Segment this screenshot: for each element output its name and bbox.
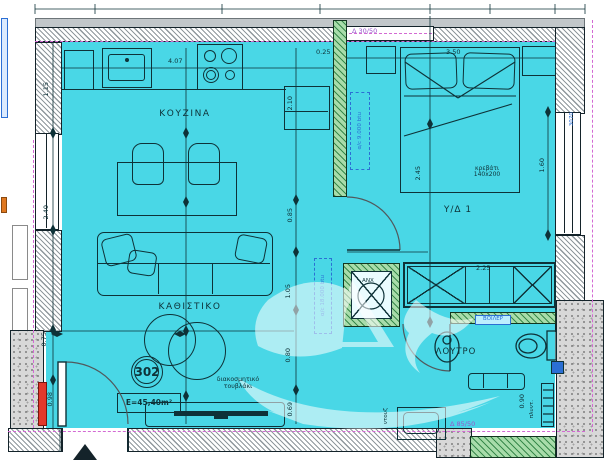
bed-pillow	[462, 52, 515, 90]
bathroom-label: ΛΟΥΤΡΟ	[424, 348, 488, 357]
burner-icon	[225, 70, 235, 80]
left-margin-orange-element	[1, 197, 7, 213]
counter-edge	[62, 89, 286, 90]
ac-bedroom-label: α/c 9.000 btu	[357, 112, 363, 150]
boundary-dashed-right	[592, 20, 593, 432]
dim-wardrobe: 2.25	[476, 265, 490, 272]
shower-mixer	[551, 361, 564, 374]
ac-unit-bedroom: α/c 9.000 btu	[350, 92, 370, 170]
shower-label: ντουζ	[384, 408, 390, 424]
shaft-label: ANX	[362, 279, 374, 285]
sofa-pillow	[126, 249, 157, 277]
kitchen-cabinet	[64, 50, 94, 90]
right-window	[555, 112, 581, 235]
boundary-dashed-left	[33, 140, 34, 428]
dim-069: 0.69	[287, 402, 294, 416]
beam-top-label: Δ 30/50	[352, 28, 377, 35]
room-fill-entry	[46, 330, 64, 428]
left-margin-blue-element	[1, 18, 8, 118]
tv-console	[145, 402, 285, 427]
left-wall-lower	[35, 230, 62, 332]
boiler-label-box: ΒΟΙΛΕΡ	[475, 315, 511, 325]
dim-240: 2.40	[43, 205, 50, 219]
partition-wall-center	[333, 20, 347, 197]
nightstand	[522, 46, 556, 76]
wardrobe-section-x	[407, 266, 465, 304]
dining-chair	[188, 143, 220, 185]
burner-ring-icon	[206, 70, 216, 80]
washer-label: πλυντ.	[530, 400, 536, 418]
window-code-label: 3070	[570, 112, 576, 126]
faucet-icon	[125, 58, 129, 62]
shower-tray	[397, 407, 446, 440]
dim-080: 0.80	[285, 348, 292, 362]
dim-towel-rail: 0.90	[519, 394, 526, 408]
bottom-green-ledge	[470, 436, 556, 458]
kitchen-label: ΚΟΥΖΙΝΑ	[140, 110, 230, 119]
bed-pillow	[404, 52, 457, 90]
brick-note-2: τουβλάκι	[224, 383, 253, 390]
sofa-pillow	[234, 233, 268, 264]
coffee-table	[168, 322, 226, 380]
kitchen-sink	[102, 48, 152, 88]
dim-210: 2.10	[287, 96, 294, 110]
dim-bed-length: 2.45	[415, 166, 422, 180]
dim-105: 1.05	[285, 284, 292, 298]
dim-085: 0.85	[287, 208, 294, 222]
dim-115: 1.15	[43, 82, 50, 96]
dim-098: 0.98	[47, 392, 54, 406]
floor-plan-canvas: α/c 9.000 btu α/c 18.000 btu 302 E=45,40…	[0, 0, 606, 460]
ac-living-label: α/c 18.000 btu	[320, 275, 326, 316]
top-wall	[35, 27, 585, 42]
ac-unit-living: α/c 18.000 btu	[314, 258, 332, 334]
dim-bed-width: 3.50	[446, 49, 460, 56]
beam-bath-label: Δ 85/50	[450, 421, 475, 428]
burner-icon	[204, 50, 216, 62]
left-margin-box-1	[12, 225, 28, 280]
dim-kitchen-width: 4.07	[168, 58, 182, 65]
unit-number-badge: 302	[131, 356, 163, 388]
boundary-dashed-top	[35, 41, 555, 42]
boiler-label: ΒΟΙΛΕΡ	[483, 317, 503, 323]
dim-window-right: 1.60	[539, 158, 546, 172]
burner-icon	[221, 48, 237, 64]
vanity	[468, 373, 525, 390]
dining-chair	[132, 143, 164, 185]
bed-size-label: 140x200	[474, 171, 500, 178]
nightstand	[366, 46, 396, 74]
bedroom-label: Υ/Δ 1	[432, 206, 484, 215]
right-wall-upper	[555, 27, 585, 114]
right-stone-column	[556, 300, 604, 458]
stove	[197, 44, 243, 90]
living-label: ΚΑΘΙΣΤΙΚΟ	[138, 303, 242, 312]
left-margin-box-2	[12, 288, 28, 336]
dim-075: 0.75	[41, 332, 48, 346]
boundary-dashed-bottom	[8, 431, 585, 432]
wardrobe-section-x	[513, 266, 552, 304]
dim-025: 0.25	[316, 49, 330, 56]
towel-radiator	[541, 383, 554, 427]
